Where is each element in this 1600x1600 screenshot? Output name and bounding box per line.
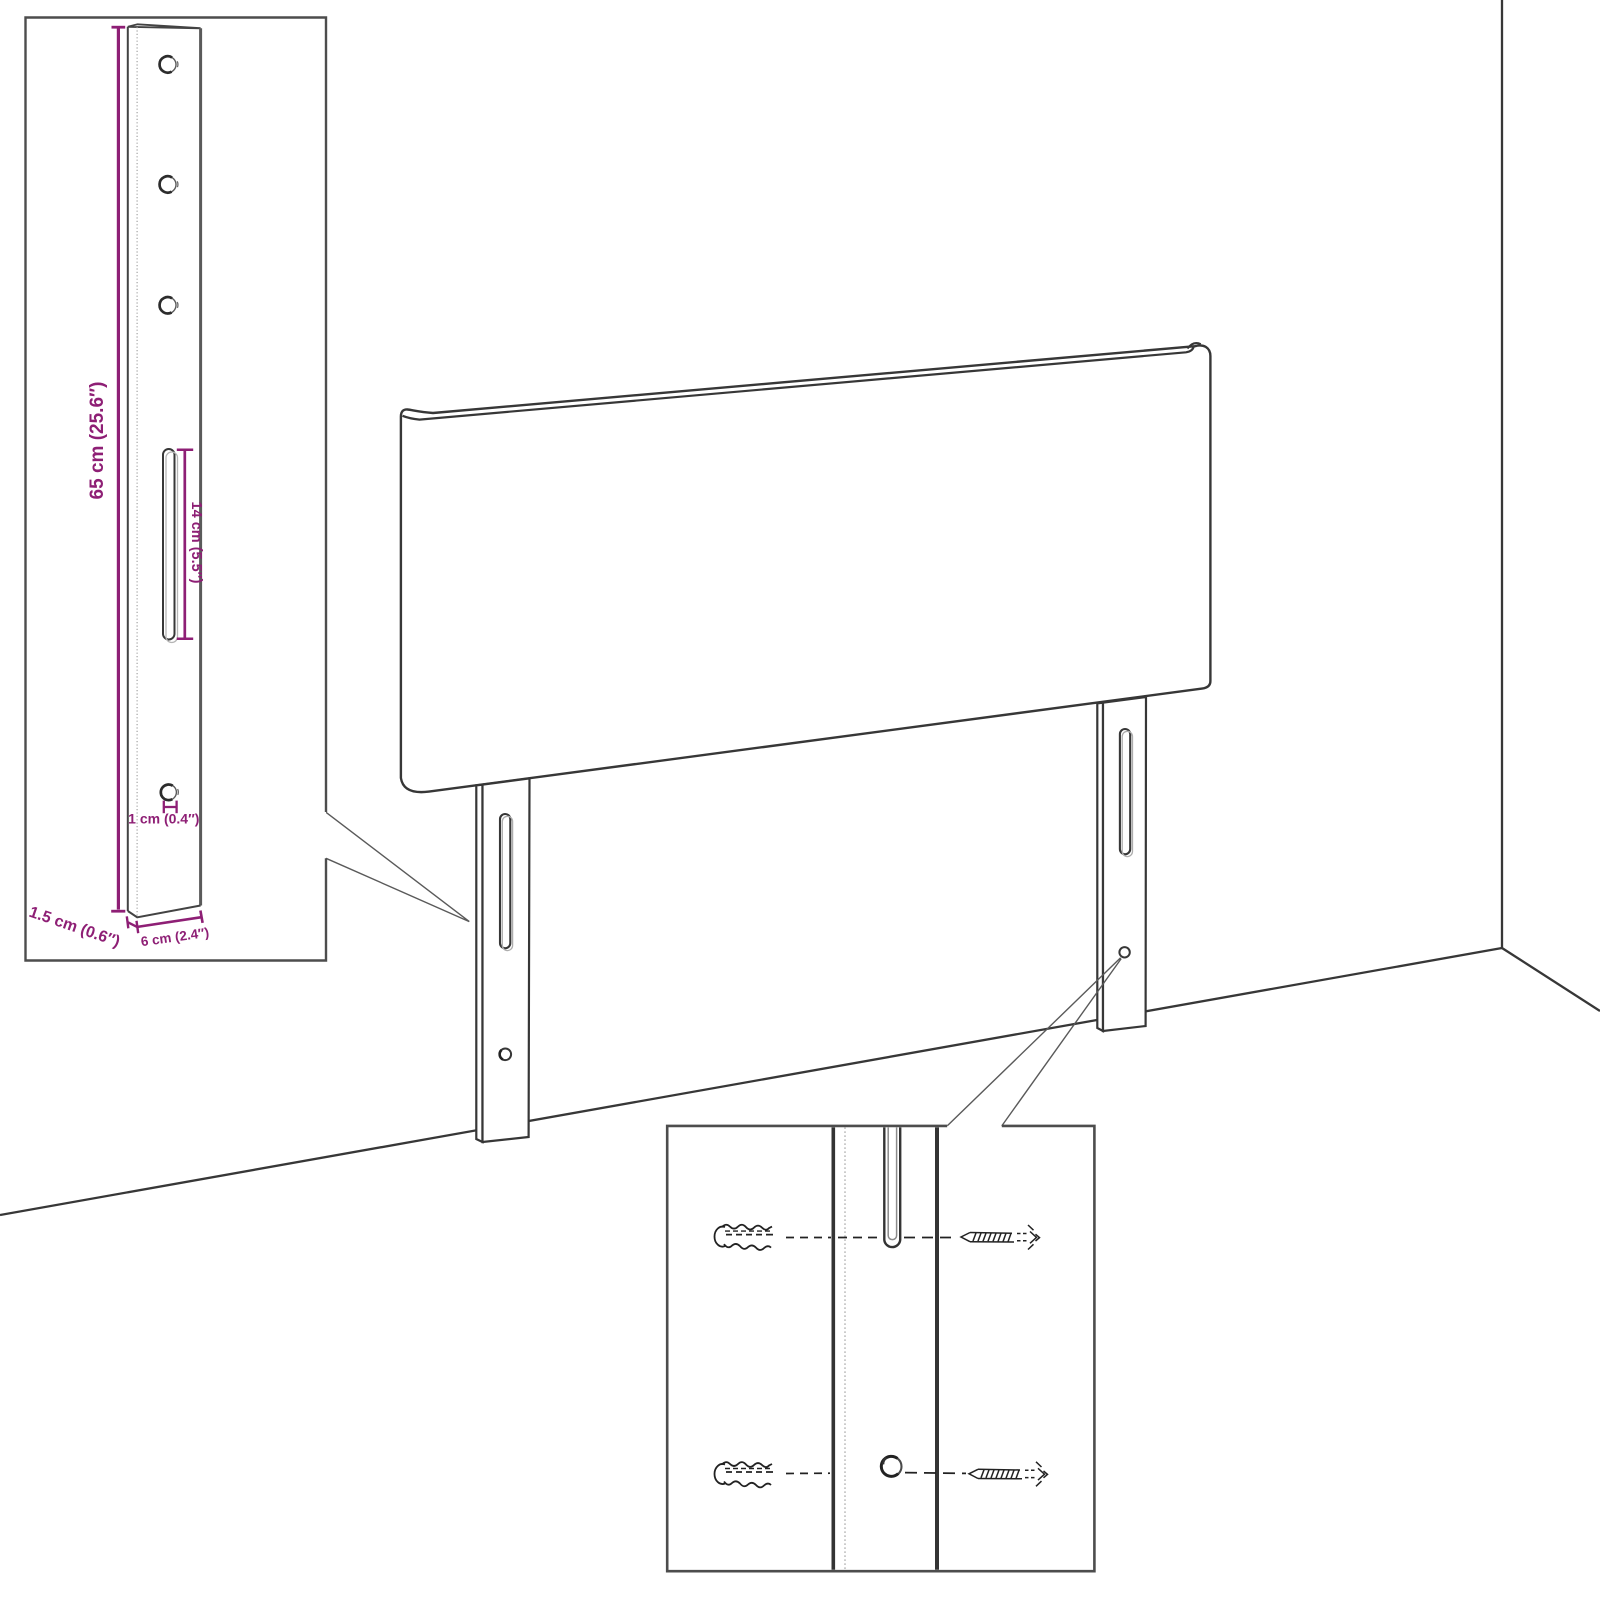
svg-text:14 cm (5.5″): 14 cm (5.5″): [188, 502, 204, 584]
svg-text:65 cm (25.6″): 65 cm (25.6″): [87, 382, 108, 500]
svg-text:1 cm (0.4″): 1 cm (0.4″): [128, 811, 199, 827]
